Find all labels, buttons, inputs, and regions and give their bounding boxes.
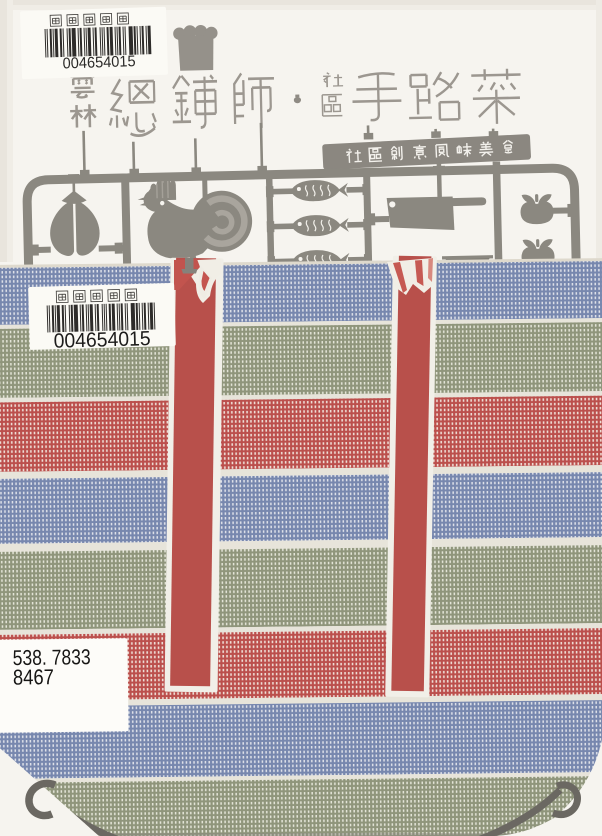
svg-text:004654015: 004654015 — [53, 327, 151, 353]
svg-text:8467: 8467 — [13, 665, 54, 689]
svg-text:004654015: 004654015 — [62, 53, 135, 72]
